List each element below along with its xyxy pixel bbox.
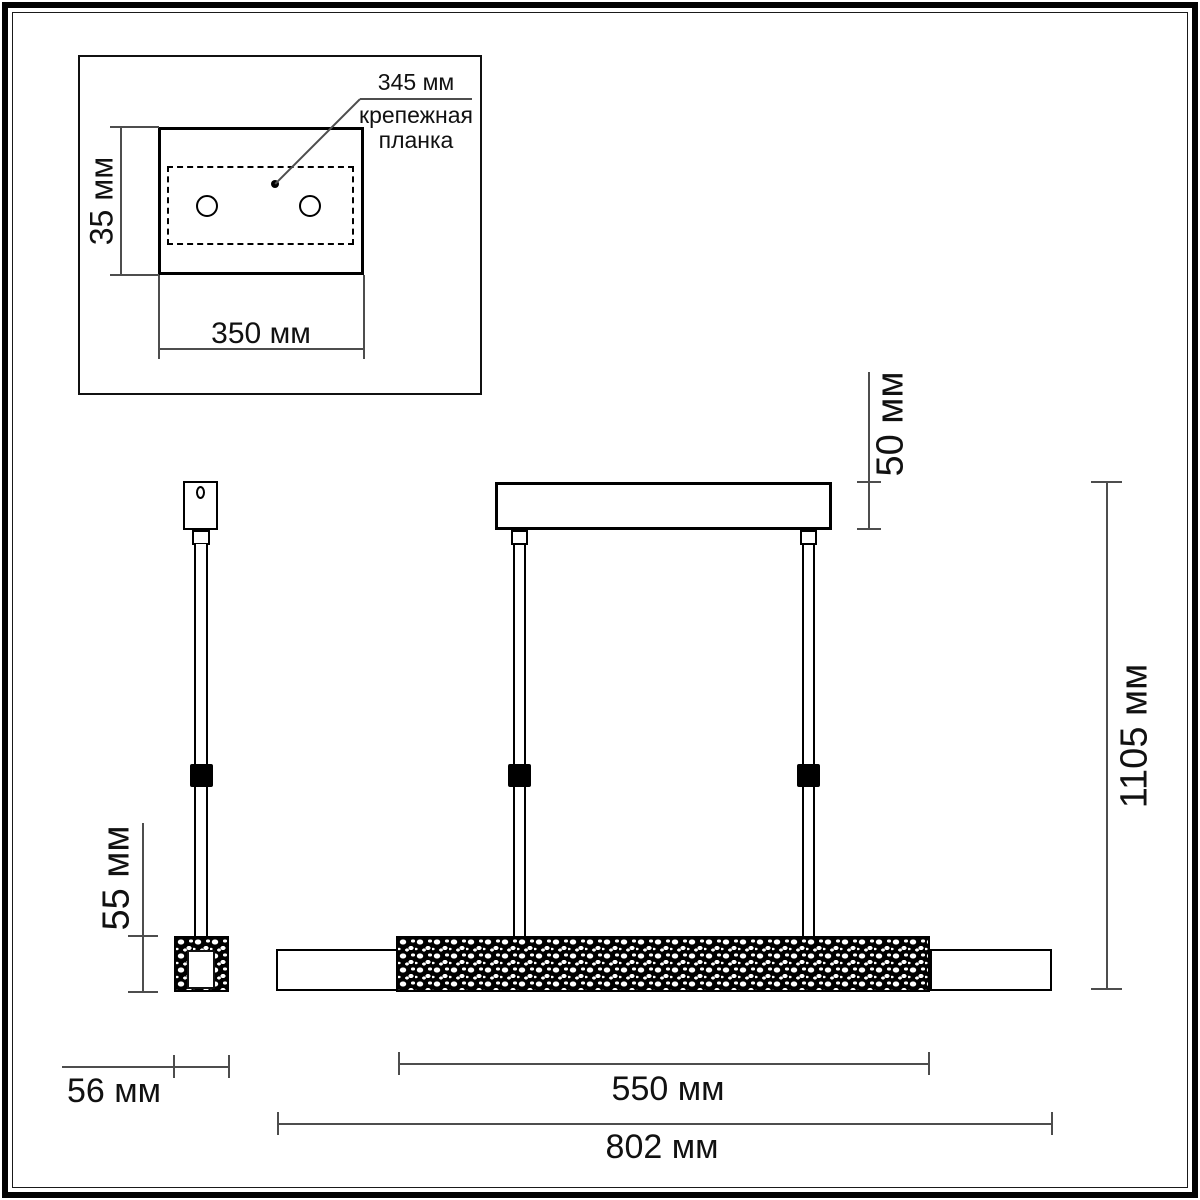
plate-height-ext-bottom (110, 274, 159, 276)
plate-width-label: 350 мм (211, 317, 311, 351)
bar-depth-label: 56 мм (67, 1072, 161, 1111)
mounting-plate-inset: 345 мм крепежная планка 35 мм 350 мм (78, 55, 482, 395)
overall-height-tick-top (1091, 481, 1122, 483)
plate-width-ext-right (363, 275, 365, 359)
diffuser-length-dim-line (398, 1063, 929, 1065)
diffuser-length-tick-right (928, 1052, 930, 1075)
lamp-crystal-diffuser (396, 936, 930, 992)
canopy-height-tick-top (857, 481, 881, 483)
plate-caption: крепежная планка (359, 103, 473, 153)
bar-height-dim-line (142, 823, 144, 992)
front-rod-neck-right (800, 530, 817, 545)
lamp-end-cap-left (276, 949, 398, 991)
screw-hole-left (196, 195, 218, 217)
plate-length-label: 345 мм (378, 70, 454, 95)
overall-height-label: 1105 мм (1114, 664, 1157, 809)
overall-height-dim-line (1106, 482, 1108, 989)
side-bar-inner-channel (187, 950, 215, 989)
screw-hole-right (299, 195, 321, 217)
bar-depth-tick-left (173, 1055, 175, 1078)
bar-depth-dim-line (62, 1066, 229, 1068)
canopy-height-label: 50 мм (870, 371, 913, 476)
diffuser-length-label: 550 мм (612, 1070, 725, 1109)
technical-drawing-page: 345 мм крепежная планка 35 мм 350 мм 55 … (0, 0, 1200, 1200)
side-suspension-rod-upper (194, 544, 208, 764)
leader-line-horizontal (360, 98, 472, 100)
plate-caption-line2: планка (359, 128, 473, 153)
side-rod-connector (190, 764, 213, 787)
side-rod-neck (192, 530, 210, 545)
side-suspension-rod-lower (194, 787, 208, 936)
front-rod-neck-left (511, 530, 528, 545)
plate-height-ext-top (110, 126, 159, 128)
overall-length-tick-right (1051, 1112, 1053, 1135)
plate-width-ext-left (158, 275, 160, 359)
plate-caption-line1: крепежная (359, 103, 473, 128)
overall-length-dim-line (277, 1123, 1052, 1125)
bar-height-label: 55 мм (96, 825, 139, 930)
keyhole-slot-icon (196, 486, 205, 499)
ceiling-canopy (495, 482, 832, 530)
front-suspension-rod-left-lower (513, 787, 526, 936)
front-rod-connector-right (797, 764, 820, 787)
front-suspension-rod-left-upper (513, 545, 526, 764)
plate-height-label: 35 мм (84, 157, 121, 245)
front-rod-connector-left (508, 764, 531, 787)
canopy-height-tick-bottom (857, 528, 881, 530)
bar-height-tick-bottom (128, 991, 158, 993)
overall-length-label: 802 мм (606, 1128, 719, 1167)
front-suspension-rod-right-lower (802, 787, 815, 936)
bar-height-tick-top (128, 935, 158, 937)
overall-height-tick-bottom (1091, 988, 1122, 990)
side-bar-cross-section (174, 936, 229, 992)
diffuser-length-tick-left (398, 1052, 400, 1075)
bar-depth-tick-right (228, 1055, 230, 1078)
front-suspension-rod-right-upper (802, 545, 815, 764)
overall-length-tick-left (277, 1112, 279, 1135)
lamp-end-cap-right (930, 949, 1052, 991)
